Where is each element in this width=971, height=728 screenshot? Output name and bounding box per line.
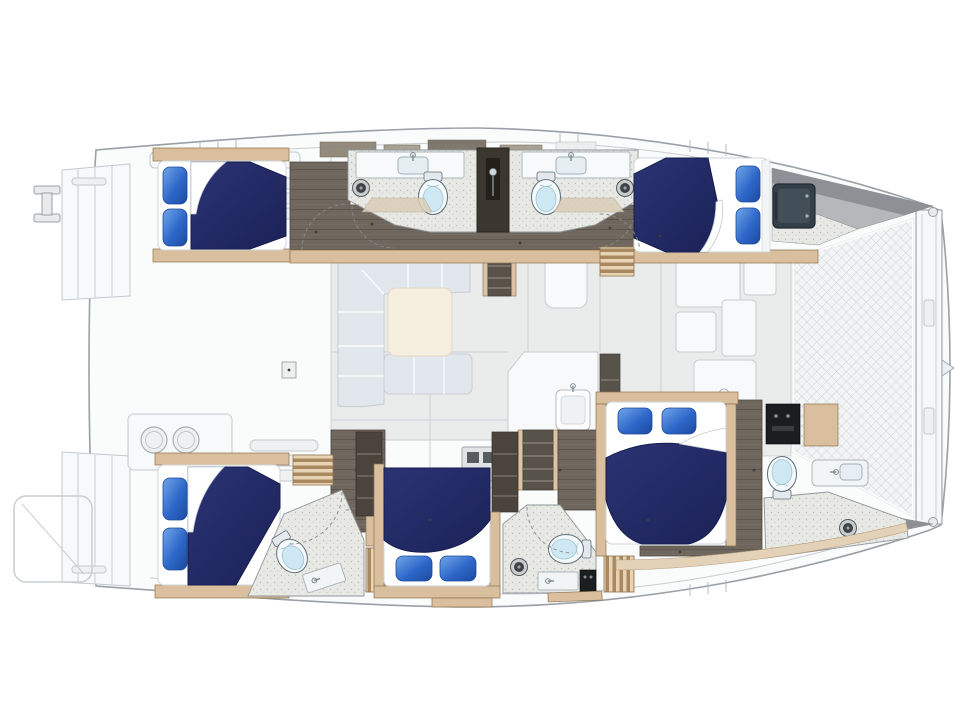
pillow-icon — [736, 208, 760, 244]
cabin-stbd-fwd — [596, 392, 738, 556]
grill-burner-icon — [173, 427, 199, 453]
cabin-port-aft — [153, 148, 290, 262]
foredeck-locker — [676, 312, 716, 352]
bathroom-port — [348, 148, 638, 232]
pillow-icon — [736, 166, 760, 202]
shower-drain-icon — [353, 180, 370, 197]
pillow-icon — [163, 478, 187, 520]
pillow-icon — [662, 408, 696, 434]
shower-drain-icon — [617, 180, 634, 197]
foredeck-locker — [722, 300, 756, 356]
transom-cleat-starboard — [72, 566, 106, 573]
forward-hatch-tv — [773, 184, 815, 228]
salon-table — [388, 288, 452, 356]
vanity-stbd-mid — [538, 572, 578, 590]
pillow-icon — [396, 556, 432, 581]
sink-icon — [840, 464, 862, 480]
pillow-icon — [618, 408, 652, 434]
transom-cleat-port — [72, 178, 106, 185]
electrical-panel — [580, 570, 596, 594]
stern-cleat-icon — [34, 186, 60, 222]
pillow-icon — [440, 556, 476, 581]
bow-fitting-starboard — [929, 518, 938, 527]
grill-burner-icon — [141, 427, 167, 453]
port-hull — [153, 148, 818, 276]
shower-drain-icon — [511, 559, 528, 576]
duvet-port-fwd — [634, 158, 718, 252]
catamaran-floorplan — [0, 0, 971, 728]
forward-crossbeam — [916, 210, 942, 524]
shower-mixer-icon — [490, 169, 497, 176]
wardrobe-mid-right — [492, 432, 518, 512]
wood-locker — [804, 404, 838, 446]
pillow-icon — [163, 209, 187, 246]
pillow-icon — [163, 167, 187, 204]
salon-chaise — [384, 354, 472, 394]
vanity-stbd-fwd — [812, 460, 868, 486]
bow-fitting-port — [929, 208, 938, 217]
ribbed-steps — [293, 455, 333, 485]
stbd-corridor-mid — [558, 430, 602, 510]
electrical-locker — [766, 404, 800, 444]
companionway-stairs-starboard — [518, 430, 558, 490]
ribbed-steps — [600, 247, 634, 276]
pillow-icon — [163, 528, 187, 570]
duvet-stbd-fwd — [606, 443, 726, 544]
shower-drain-icon — [840, 520, 857, 537]
